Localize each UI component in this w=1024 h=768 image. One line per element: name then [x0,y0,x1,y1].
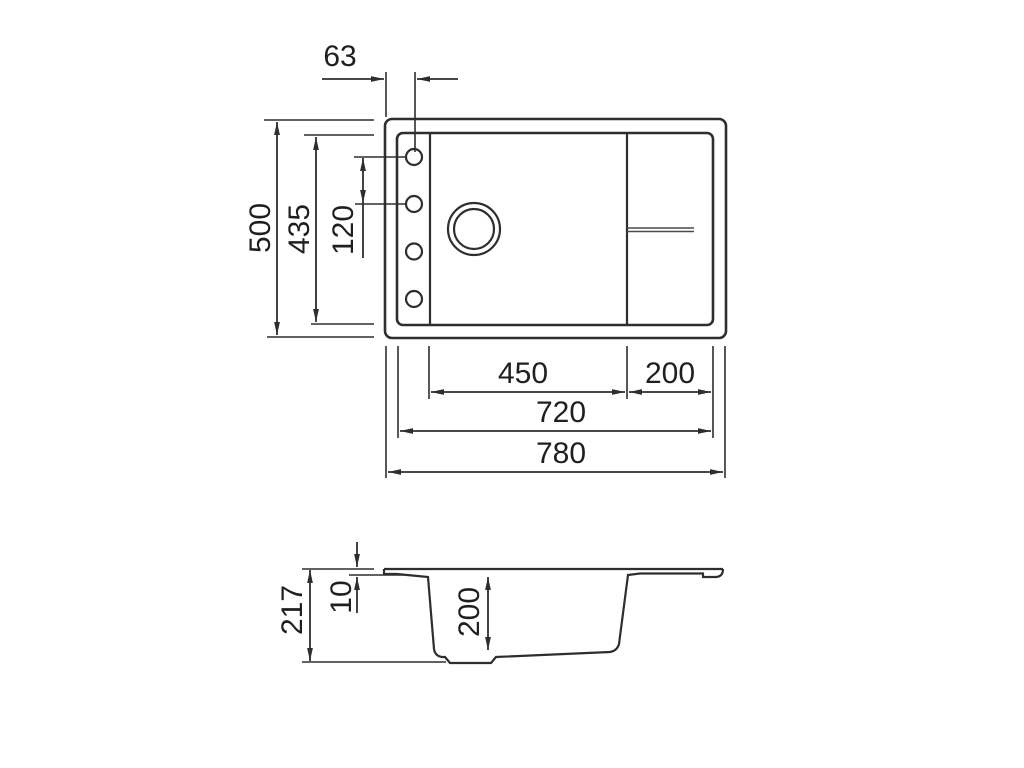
dim-hole-spacing-label: 120 [327,205,360,255]
sink-dimension-drawing: 63 500 435 120 450 200 720 780 [0,0,1024,768]
dim-total-height-label: 217 [276,585,309,635]
tap-hole-2 [406,196,422,212]
sink-profile-section [384,569,723,663]
tap-hole-3 [406,244,422,260]
dim-hole-offset-label: 63 [323,40,356,73]
dim-inner-width: 720 [400,396,711,431]
dim-rim-thickness-label: 10 [325,580,358,613]
tap-hole-4 [406,291,422,307]
drain-hole-inner-ring [454,209,494,249]
dim-rim-thickness: 10 [325,542,410,614]
dim-drainer-width: 200 [629,357,711,392]
dim-outer-width: 780 [388,437,723,472]
dim-hole-spacing: 120 [327,157,405,258]
dim-total-height: 217 [276,569,446,662]
dim-bowl-width: 450 [431,357,625,392]
drain-hole-outer-ring [448,203,500,255]
dim-bowl-width-label: 450 [498,357,548,390]
dim-drainer-width-label: 200 [645,357,695,390]
dim-bowl-depth: 200 [453,577,488,650]
side-view [384,569,723,663]
dim-outer-width-label: 780 [536,437,586,470]
top-view [385,119,726,338]
dim-inner-width-label: 720 [536,396,586,429]
tap-hole-1 [406,149,422,165]
sink-inner-rim [397,133,713,325]
dim-bowl-depth-label: 200 [453,587,486,637]
dim-outer-height-label: 500 [244,203,277,253]
dim-inner-height-label: 435 [283,204,316,254]
